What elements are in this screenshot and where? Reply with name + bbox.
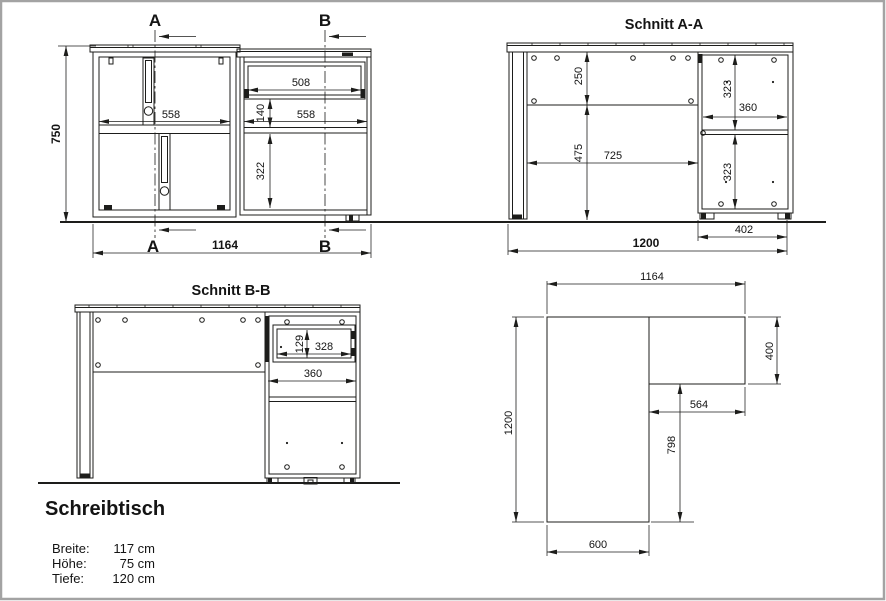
dim-label-564: 564	[690, 399, 708, 411]
section-label-a-top: A	[149, 11, 161, 30]
front-right-desktop	[237, 49, 371, 57]
dim-label-360: 360	[304, 368, 322, 380]
dim-plan-desk-width: 600	[547, 525, 649, 556]
dim-aa-upper-compartment: 323	[722, 55, 735, 130]
spec-value-breite: 117 cm	[113, 541, 155, 556]
section-aa-view: Schnitt A-A	[507, 17, 793, 255]
dim-label-322: 322	[255, 162, 267, 180]
dim-compartment-height: 322	[255, 134, 270, 208]
product-info: Schreibtisch Breite: 117 cm Höhe: 75 cm …	[45, 498, 165, 586]
bb-pedestal	[265, 312, 360, 484]
drawing-canvas: 750 558 508 140 558 322 1164	[0, 0, 886, 601]
dim-left-cabinet-width: 558	[99, 109, 230, 122]
technical-drawing-sheet: 750 558 508 140 558 322 1164	[0, 0, 886, 601]
dim-plan-return-depth: 400	[748, 317, 781, 384]
section-bb-title: Schnitt B-B	[192, 283, 271, 299]
spec-value-hoehe: 75 cm	[120, 556, 155, 571]
dim-label-250: 250	[573, 67, 585, 85]
dim-aa-lower-height: 475	[573, 105, 587, 220]
front-left-desktop	[90, 45, 240, 52]
lower-door-handle	[159, 134, 170, 211]
section-label-b-bottom: B	[319, 237, 331, 256]
section-aa-title: Schnitt A-A	[625, 17, 704, 33]
section-label-b-top: B	[319, 11, 331, 30]
dim-label-558-right: 558	[297, 109, 315, 121]
plan-view: 1164 1200 400 564 798 600	[503, 271, 781, 556]
dim-label-475: 475	[573, 144, 585, 162]
dim-bb-drawer-depth: 328	[277, 341, 351, 354]
dim-drawer-width: 508	[248, 77, 361, 90]
product-title: Schreibtisch	[45, 498, 165, 520]
dim-plan-total-depth: 1200	[503, 317, 544, 522]
connector-mark	[342, 53, 353, 57]
spec-label-breite: Breite:	[52, 541, 90, 556]
dim-label-1164-plan: 1164	[640, 271, 664, 283]
dim-label-750: 750	[49, 124, 63, 144]
dim-label-1200: 1200	[633, 236, 660, 250]
plan-outline	[547, 317, 745, 522]
section-bb-view: Schnitt B-B	[38, 283, 400, 484]
hinge-mark	[219, 58, 223, 64]
spec-label-hoehe: Höhe:	[52, 556, 87, 571]
upper-door-handle	[143, 58, 154, 125]
connector-mark	[699, 54, 703, 63]
aa-pedestal	[698, 52, 793, 219]
dim-plan-inner-depth: 798	[651, 384, 694, 522]
hinge-mark	[109, 58, 113, 64]
dim-plan-return-width: 564	[649, 387, 745, 416]
spec-value-tiefe: 120 cm	[112, 571, 155, 586]
aa-back-panel	[527, 56, 698, 105]
front-view: 750 558 508 140 558 322 1164	[49, 11, 371, 258]
spec-label-tiefe: Tiefe:	[52, 571, 84, 586]
dim-bb-opening-depth: 360	[268, 368, 356, 381]
dim-label-725: 725	[604, 150, 622, 162]
front-wall-section	[266, 316, 270, 362]
dim-aa-pedestal-depth: 402	[698, 220, 787, 255]
dim-label-508: 508	[292, 77, 310, 89]
foot-mark	[80, 474, 90, 479]
dim-label-558-left: 558	[162, 109, 180, 121]
dim-label-360: 360	[739, 102, 757, 114]
foot-mark	[104, 205, 112, 210]
dim-label-328: 328	[315, 341, 333, 353]
dim-aa-back-panel-height: 250	[573, 52, 587, 105]
dim-label-798: 798	[666, 436, 678, 454]
bb-desktop	[75, 305, 360, 312]
dim-label-323-top: 323	[722, 80, 734, 98]
foot-mark	[512, 215, 522, 220]
dim-label-600: 600	[589, 539, 607, 551]
bb-back-panel	[93, 318, 265, 372]
section-label-a-bottom: A	[147, 237, 159, 256]
dim-aa-shelf-depth: 360	[703, 102, 787, 117]
front-left-cabinet	[93, 52, 236, 217]
right-foot	[346, 215, 359, 221]
dim-label-1164: 1164	[212, 238, 238, 252]
dim-front-height: 750	[49, 46, 96, 222]
dim-label-140: 140	[255, 104, 267, 122]
dim-aa-inner-depth: 725	[527, 150, 698, 163]
dim-label-129: 129	[294, 335, 306, 353]
dim-label-323-bottom: 323	[722, 163, 734, 181]
dim-plan-total-width: 1164	[547, 271, 745, 314]
aa-desktop	[507, 43, 793, 52]
foot-mark	[217, 205, 225, 210]
bb-leg	[77, 312, 93, 478]
dim-drawer-to-shelf: 140	[255, 99, 270, 128]
dim-label-1200-plan: 1200	[503, 411, 515, 435]
dim-label-402: 402	[735, 224, 753, 236]
dim-label-400: 400	[764, 342, 776, 360]
dim-aa-lower-compartment: 323	[722, 135, 735, 210]
aa-leg	[509, 52, 527, 219]
